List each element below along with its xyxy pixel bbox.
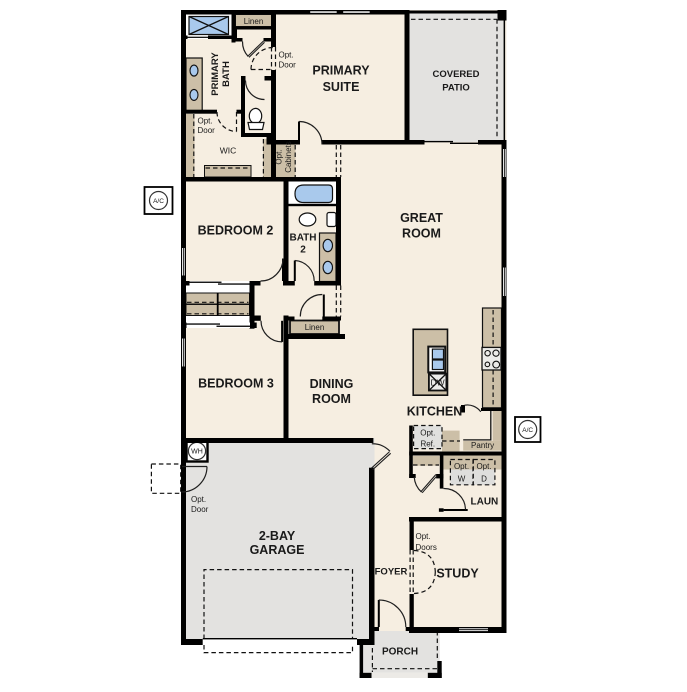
svg-text:Door: Door xyxy=(191,505,209,514)
svg-text:STUDY: STUDY xyxy=(436,567,479,581)
svg-text:Door: Door xyxy=(279,61,297,70)
svg-text:Opt.: Opt. xyxy=(275,149,284,164)
svg-text:KITCHEN: KITCHEN xyxy=(407,405,463,419)
svg-text:D: D xyxy=(481,475,487,484)
svg-text:PATIO: PATIO xyxy=(442,83,470,94)
svg-text:2-BAY: 2-BAY xyxy=(259,529,296,543)
svg-text:A/C: A/C xyxy=(522,427,533,434)
svg-text:WH: WH xyxy=(191,449,203,456)
svg-text:DW: DW xyxy=(431,378,445,388)
svg-text:LAUN: LAUN xyxy=(471,497,499,508)
svg-text:PRIMARY: PRIMARY xyxy=(312,64,370,78)
svg-text:A/C: A/C xyxy=(153,198,164,205)
svg-text:Opt.: Opt. xyxy=(279,51,294,60)
svg-text:Doors: Doors xyxy=(416,543,437,552)
svg-text:Opt.: Opt. xyxy=(416,532,431,541)
svg-text:BEDROOM 2: BEDROOM 2 xyxy=(198,224,274,238)
svg-text:Door: Door xyxy=(198,126,216,135)
svg-text:WIC: WIC xyxy=(220,146,237,156)
svg-text:BATH: BATH xyxy=(221,61,232,87)
svg-text:BEDROOM 3: BEDROOM 3 xyxy=(198,377,274,391)
svg-text:W: W xyxy=(458,475,466,484)
svg-text:COVERED: COVERED xyxy=(433,69,480,80)
svg-text:Linen: Linen xyxy=(305,323,325,332)
svg-text:ROOM: ROOM xyxy=(402,227,441,241)
svg-text:FOYER: FOYER xyxy=(375,567,408,578)
svg-text:Opt.: Opt. xyxy=(476,462,491,471)
svg-text:GREAT: GREAT xyxy=(400,211,443,225)
svg-text:Opt.: Opt. xyxy=(198,117,213,126)
svg-text:GARAGE: GARAGE xyxy=(250,543,305,557)
svg-text:Ref.: Ref. xyxy=(420,440,435,449)
svg-text:ROOM: ROOM xyxy=(312,392,351,406)
svg-text:Pantry: Pantry xyxy=(471,441,494,450)
svg-text:SUITE: SUITE xyxy=(323,80,360,94)
svg-text:Opt.: Opt. xyxy=(191,495,206,504)
svg-text:PORCH: PORCH xyxy=(382,647,418,658)
svg-text:Linen: Linen xyxy=(244,17,264,26)
svg-text:Opt.: Opt. xyxy=(420,429,435,438)
svg-text:BATH: BATH xyxy=(289,233,316,244)
svg-text:Opt.: Opt. xyxy=(454,462,469,471)
svg-text:DINING: DINING xyxy=(310,377,354,391)
svg-text:Cabinets: Cabinets xyxy=(284,141,293,173)
svg-text:PRIMARY: PRIMARY xyxy=(210,52,221,96)
svg-text:2: 2 xyxy=(300,245,306,256)
